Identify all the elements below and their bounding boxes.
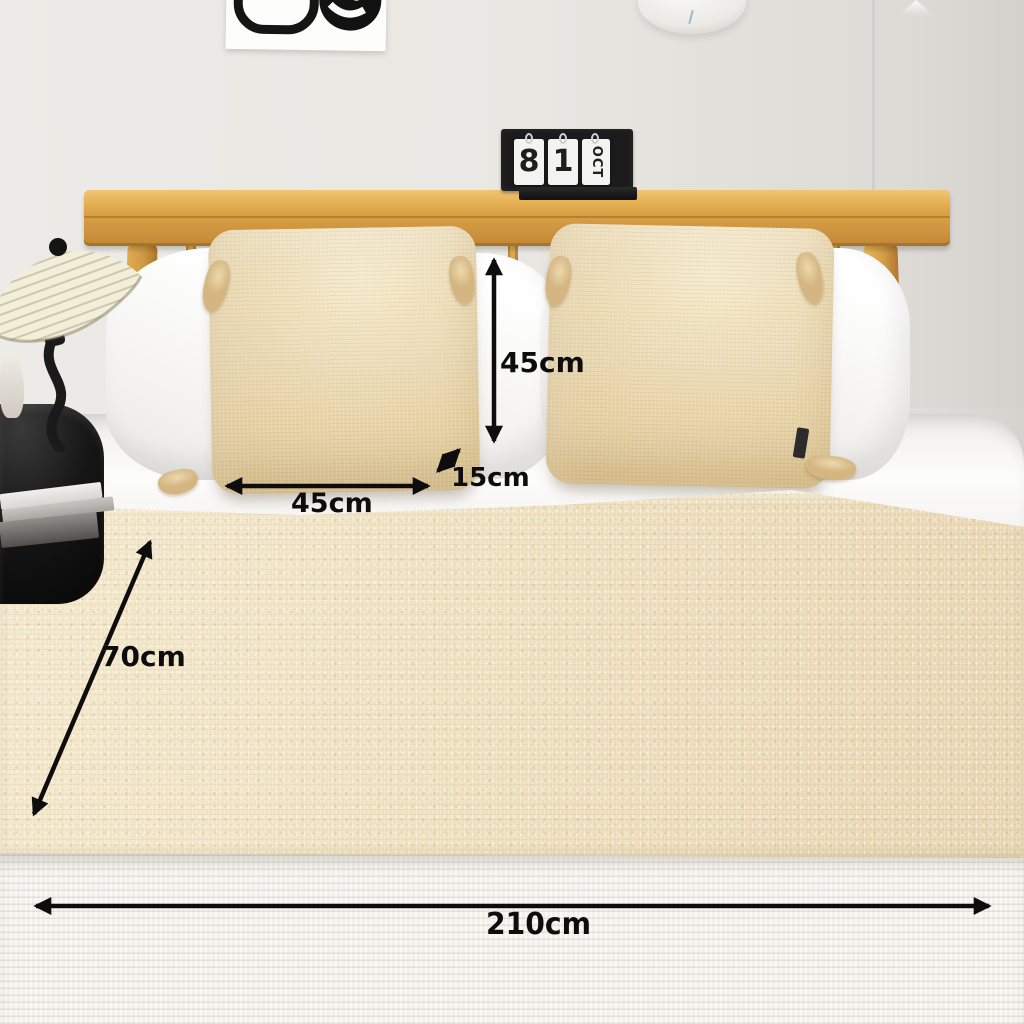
- calendar-day-units-card: 1: [548, 139, 578, 185]
- runner-length-label: 210cm: [486, 907, 591, 942]
- tassel-cushion-right: [545, 223, 834, 489]
- flip-calendar: 8 1 OCT: [501, 129, 643, 209]
- calendar-day-units: 1: [548, 139, 578, 185]
- calendar-day-tens-card: 8: [514, 139, 544, 185]
- table-lamp: [0, 230, 170, 452]
- bed-runner: [0, 488, 1024, 860]
- clock-hand: [688, 10, 693, 24]
- calendar-ring-icon: [559, 133, 567, 144]
- calendar-day-tens: 8: [514, 139, 544, 185]
- product-photo: 8 1 OCT: [0, 0, 1024, 1024]
- cushion-depth-label: 15cm: [451, 463, 530, 493]
- runner-width-label: 70cm: [101, 640, 186, 673]
- calendar-ring-icon: [591, 133, 599, 144]
- calendar-month-card: OCT: [582, 139, 610, 185]
- abstract-wall-art: [226, 0, 387, 51]
- calendar-month: OCT: [582, 139, 610, 185]
- table-lamp-shape: [0, 230, 170, 452]
- calendar-base: [519, 187, 637, 200]
- cushion-height-label: 45cm: [500, 346, 585, 379]
- cushion-width-label: 45cm: [291, 488, 373, 519]
- tassel-cushion-left: [208, 226, 481, 495]
- wall-art-shapes: [226, 0, 387, 51]
- calendar-ring-icon: [525, 133, 533, 144]
